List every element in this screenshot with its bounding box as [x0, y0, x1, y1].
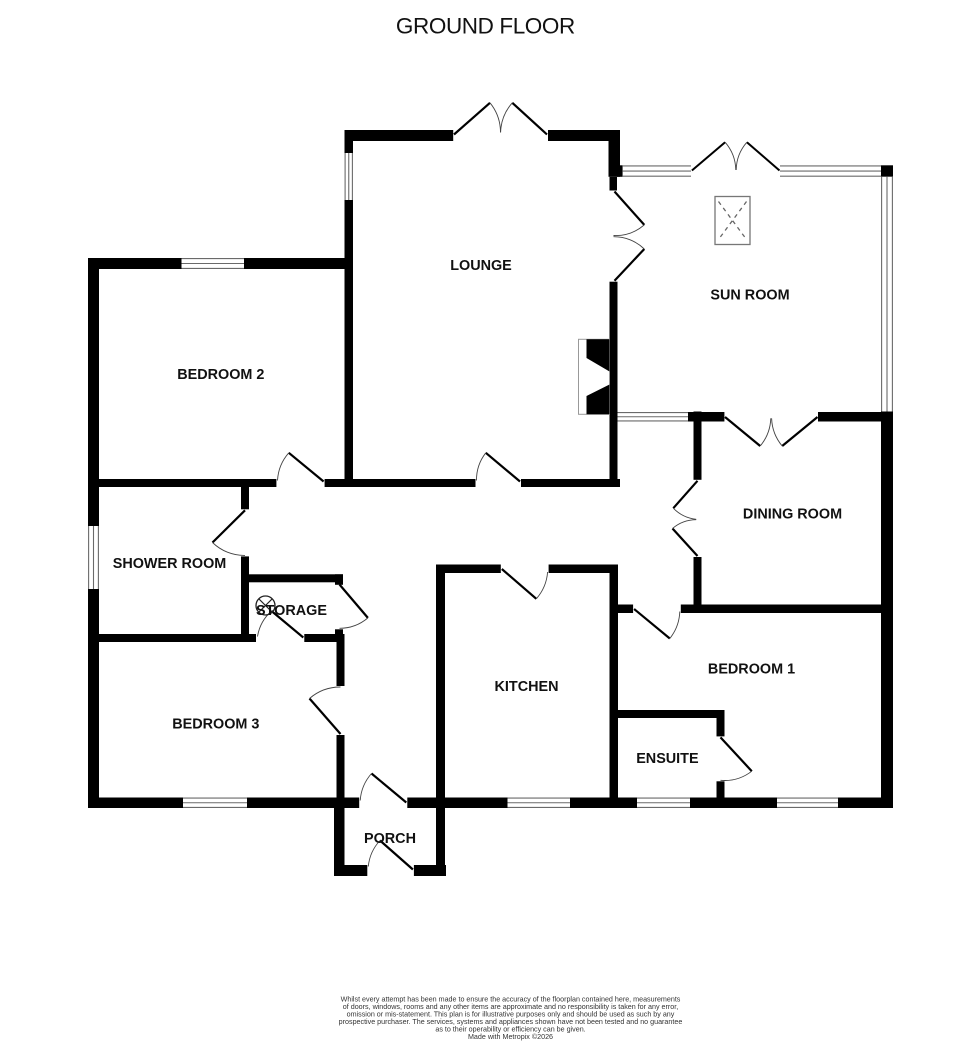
svg-text:BEDROOM 3: BEDROOM 3: [172, 717, 259, 733]
svg-text:STORAGE: STORAGE: [256, 603, 327, 619]
svg-text:KITCHEN: KITCHEN: [495, 679, 559, 695]
svg-text:BEDROOM 2: BEDROOM 2: [177, 367, 264, 383]
svg-text:Made with Metropix ©2026: Made with Metropix ©2026: [468, 1033, 553, 1041]
svg-text:SHOWER ROOM: SHOWER ROOM: [113, 556, 227, 572]
svg-text:LOUNGE: LOUNGE: [450, 258, 512, 274]
svg-text:GROUND FLOOR: GROUND FLOOR: [396, 14, 575, 39]
svg-text:PORCH: PORCH: [364, 831, 416, 847]
svg-text:DINING ROOM: DINING ROOM: [743, 507, 842, 523]
svg-text:SUN ROOM: SUN ROOM: [710, 288, 789, 304]
svg-text:ENSUITE: ENSUITE: [636, 751, 699, 767]
svg-text:BEDROOM 1: BEDROOM 1: [708, 662, 795, 678]
